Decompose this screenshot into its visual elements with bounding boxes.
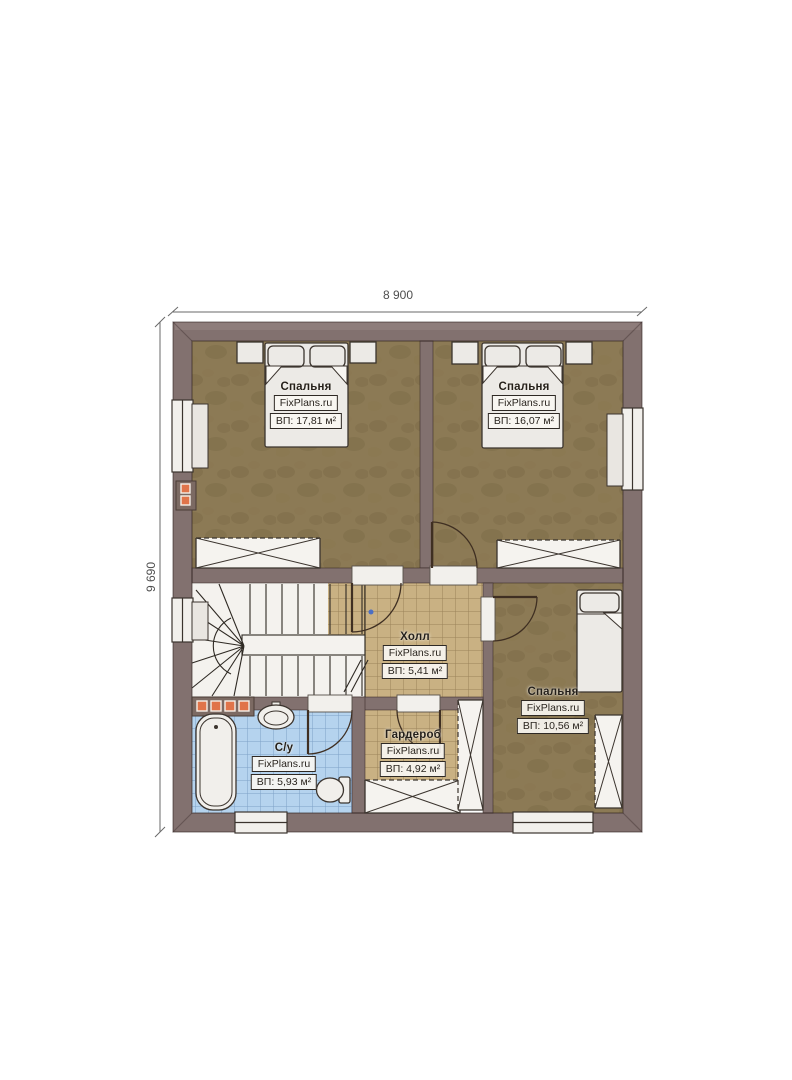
window-bottom-bathroom <box>235 812 287 833</box>
left-wall-flue <box>176 481 196 510</box>
room-name: Спальня <box>527 686 578 698</box>
toilet <box>317 777 351 803</box>
cabinet-bedroom1 <box>196 538 320 568</box>
pillow <box>310 346 345 367</box>
pillow <box>526 346 561 367</box>
room-area: ВП: 5,41 м² <box>382 663 448 679</box>
threshold-hall-bedroom2 <box>430 566 477 585</box>
bathroom-flue <box>192 697 254 716</box>
room-name: Холл <box>400 631 430 643</box>
bathtub <box>196 714 236 810</box>
room-name: Гардероб <box>385 729 441 741</box>
room-label-hall: Холл FixPlans.ru ВП: 5,41 м² <box>382 631 448 679</box>
window-left-stairs <box>172 598 208 642</box>
window-sill <box>192 602 208 640</box>
stair-reference-dot <box>369 610 374 615</box>
room-area: ВП: 16,07 м² <box>488 413 560 429</box>
pillow <box>485 346 520 367</box>
floor-plan-page: 8 900 9 690 Спальня FixPlans.ru ВП: 17,8… <box>0 0 792 1080</box>
room-area: ВП: 4,92 м² <box>380 761 446 777</box>
pillow <box>268 346 304 367</box>
room-label-bedroom-3: Спальня FixPlans.ru ВП: 10,56 м² <box>517 686 589 734</box>
watermark: FixPlans.ru <box>383 645 448 661</box>
room-area: ВП: 10,56 м² <box>517 718 589 734</box>
drain <box>214 725 218 729</box>
threshold-hall-bedroom3 <box>481 597 495 641</box>
watermark: FixPlans.ru <box>521 700 586 716</box>
nightstand <box>452 342 478 364</box>
threshold-hall-bedroom1 <box>352 566 403 585</box>
watermark: FixPlans.ru <box>381 743 446 759</box>
room-name: Спальня <box>498 381 549 393</box>
floor-plan-drawing <box>0 0 792 1080</box>
room-area: ВП: 17,81 м² <box>270 413 342 429</box>
threshold-hall-bathroom <box>308 695 352 712</box>
nightstand <box>350 342 376 363</box>
room-label-bedroom-2: Спальня FixPlans.ru ВП: 16,07 м² <box>488 381 560 429</box>
cabinet-wardrobe-room <box>365 780 460 813</box>
stair-landing-rail <box>242 635 365 655</box>
wall-bedrooms-hall <box>192 568 623 583</box>
window-sill <box>607 414 623 486</box>
room-label-bedroom-1: Спальня FixPlans.ru ВП: 17,81 м² <box>270 381 342 429</box>
room-label-bathroom: С/у FixPlans.ru ВП: 5,93 м² <box>251 742 317 790</box>
nightstand <box>237 342 263 363</box>
threshold-hall-wardrobe <box>397 695 440 712</box>
dimension-height-label: 9 690 <box>136 549 166 605</box>
dimension-width-label: 8 900 <box>358 288 438 302</box>
room-label-wardrobe: Гардероб FixPlans.ru ВП: 4,92 м² <box>380 729 446 777</box>
window-right-bedroom2 <box>607 408 643 490</box>
cabinet-bedroom3 <box>595 715 622 808</box>
room-area: ВП: 5,93 м² <box>251 774 317 790</box>
window-left-bedroom1 <box>172 400 208 472</box>
wall-bathroom-wardrobe <box>352 697 365 813</box>
watermark: FixPlans.ru <box>492 395 557 411</box>
cabinet-bedroom2 <box>497 540 620 568</box>
window-bottom-bedroom3 <box>513 812 593 833</box>
window-sill <box>192 404 208 468</box>
floor-plan: 8 900 9 690 Спальня FixPlans.ru ВП: 17,8… <box>0 0 792 1080</box>
bed-bedroom3 <box>577 590 622 692</box>
cabinet-wardrobe-tall <box>458 700 483 810</box>
watermark: FixPlans.ru <box>252 756 317 772</box>
room-name: Спальня <box>280 381 331 393</box>
nightstand <box>566 342 592 364</box>
room-name: С/у <box>275 742 294 754</box>
watermark: FixPlans.ru <box>274 395 339 411</box>
pillow <box>580 593 619 612</box>
